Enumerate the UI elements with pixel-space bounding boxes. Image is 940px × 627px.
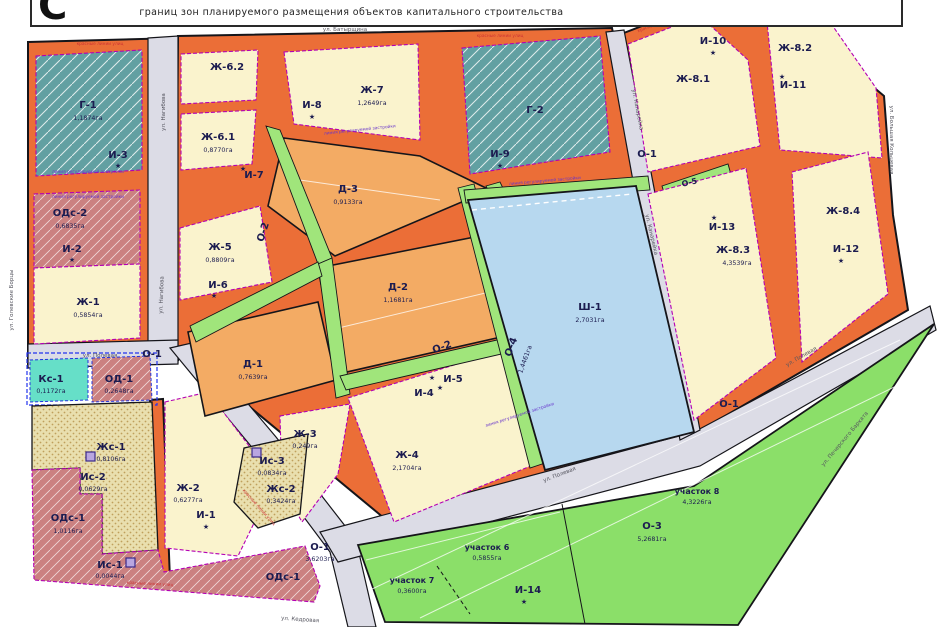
zone-label-zh2: Ж-2 — [176, 483, 199, 494]
zone-label-i7: И-7 — [244, 170, 264, 181]
zone-label-zhs1: Жс-1 — [96, 442, 125, 453]
regulated-line-annotation: линия регулируемой застройки — [52, 168, 124, 175]
title-bar: С границ зон планируемого размещения объ… — [30, 0, 903, 27]
zone-label-zh3: Ж-3 — [293, 429, 316, 440]
zone-label-is2: Ис-2 — [80, 472, 105, 483]
zone-label-zh82: Ж-8.2 — [778, 43, 812, 54]
zone-area-zhs2: 0,3424га — [266, 498, 295, 505]
substation-icon — [126, 558, 135, 567]
zone-label-d3: Д-3 — [338, 184, 358, 195]
zone-label-i13: И-13 — [709, 222, 735, 233]
zone-label-od1: ОД-1 — [105, 374, 134, 385]
zone-label-ks1: Кс-1 — [38, 374, 63, 385]
zone-area-zhs1: 0,8106га — [96, 456, 125, 463]
zone-label-i9: И-9 — [490, 149, 510, 160]
zone-area-o1: 3,6203га — [305, 556, 334, 563]
zone-label-i3: И-3 — [108, 150, 128, 161]
zone-label-i6: И-6 — [208, 280, 228, 291]
zone-area-is1: 0,0044га — [95, 573, 124, 580]
zone-area-d1: 0,7639га — [238, 374, 267, 381]
zone-area-zh4: 2,1704га — [392, 465, 421, 472]
zone-area-od1: 0,2648га — [104, 388, 133, 395]
zone-label-zh62: Ж-6.2 — [210, 62, 244, 73]
title-glyph: С — [38, 1, 67, 11]
zone-label-i1: И-1 — [196, 510, 216, 521]
zone-zh62-region — [181, 50, 258, 104]
zone-label-uch7: участок 7 — [390, 576, 435, 585]
zone-label-uch8: участок 8 — [675, 487, 720, 496]
street-label-bolshaya-koltsevaya: ул. Большая Кольцевая — [888, 106, 894, 175]
star-icon: ★ — [521, 598, 527, 606]
regulated-line-annotation: линия регулируемой застройки — [52, 193, 124, 200]
zone-label-i10: И-10 — [700, 36, 726, 47]
star-icon: ★ — [115, 162, 121, 170]
street-label-nagibova: ул. Нагибова — [161, 93, 167, 131]
zone-area-is3: 0,0834га — [257, 470, 286, 477]
street-label-polevaya: ул. Полевая — [83, 353, 118, 359]
zone-label-ods2: ОДс-2 — [53, 208, 87, 219]
star-icon: ★ — [203, 523, 209, 531]
zone-label-o1b: О-1 — [637, 149, 657, 160]
zone-area-zh83: 4,3539га — [722, 260, 751, 267]
zone-label-g2: Г-2 — [526, 105, 544, 116]
zone-label-o1c: О-1 — [719, 399, 739, 410]
star-icon: ★ — [240, 165, 246, 173]
star-icon: ★ — [437, 384, 443, 392]
zone-area-ods1: 1,0116га — [53, 528, 82, 535]
zone-label-zh83: Ж-8.3 — [716, 245, 750, 256]
substation-icon — [86, 452, 95, 461]
zone-label-ods1: ОДс-1 — [51, 513, 85, 524]
zone-label-zhs2: Жс-2 — [266, 484, 295, 495]
zone-area-zh2: 0,6277га — [173, 497, 202, 504]
zone-label-i4: И-4 — [414, 388, 434, 399]
plan-map: Г-1 1,1874га И-3 ★ ОДс-2 0,6835га И-2 ★ … — [0, 0, 940, 627]
zone-area-zh7: 1,2649га — [357, 100, 386, 107]
zone-label-i14: И-14 — [515, 585, 541, 596]
zone-area-uch7: 0,3600га — [397, 588, 426, 595]
red-line-annotation: красные линии улиц — [77, 42, 124, 47]
zone-label-zh4: Ж-4 — [395, 450, 418, 461]
zone-label-g1: Г-1 — [79, 100, 97, 111]
page-title: границ зон планируемого размещения объек… — [139, 7, 563, 18]
street-label-batyrshina: ул. Батырщина — [323, 27, 367, 33]
zone-area-zh1: 0,5854га — [73, 312, 102, 319]
star-icon: ★ — [779, 73, 785, 81]
zone-label-zh84: Ж-8.4 — [826, 206, 860, 217]
star-icon: ★ — [309, 113, 315, 121]
zone-label-o3: О-3 — [642, 521, 662, 532]
street-label-kedrovaya: ул. Кедровая — [281, 616, 319, 625]
red-line-annotation: красные линии улиц — [477, 34, 524, 39]
zone-area-ods2: 0,6835га — [55, 223, 84, 230]
zone-label-i12: И-12 — [833, 244, 859, 255]
zone-area-d2: 1,1681га — [383, 297, 412, 304]
zone-label-zh61: Ж-6.1 — [201, 132, 235, 143]
star-icon: ★ — [69, 256, 75, 264]
map-canvas: Г-1 1,1874га И-3 ★ ОДс-2 0,6835га И-2 ★ … — [0, 0, 940, 627]
zone-label-zh81: Ж-8.1 — [676, 74, 710, 85]
zone-label-i11: И-11 — [780, 80, 806, 91]
star-icon: ★ — [710, 49, 716, 57]
zone-label-is1: Ис-1 — [97, 560, 122, 571]
star-icon: ★ — [711, 214, 717, 222]
zone-label-d1: Д-1 — [243, 359, 263, 370]
zone-label-uch6: участок 6 — [465, 543, 510, 552]
zone-label-zh7: Ж-7 — [360, 85, 383, 96]
zone-ods2-region — [34, 190, 140, 268]
zone-label-zh5: Ж-5 — [208, 242, 231, 253]
zone-area-sh1: 2,7031га — [575, 317, 604, 324]
zone-label-o1a: О-1 — [142, 349, 162, 360]
star-icon: ★ — [838, 257, 844, 265]
zone-area-d3: 0,9133га — [333, 199, 362, 206]
star-icon: ★ — [211, 292, 217, 300]
zone-area-uch8: 4,3226га — [682, 499, 711, 506]
zone-area-zh61: 0,8770га — [203, 147, 232, 154]
street-label-golevskie: ул. Голевские Борцы — [9, 270, 15, 331]
zone-area-is2: 0,0629га — [78, 486, 107, 493]
zone-label-is3: Ис-3 — [259, 456, 284, 467]
zone-label-d2: Д-2 — [388, 282, 408, 293]
zone-area-ks1: 0,1172га — [36, 388, 65, 395]
zone-label-i8: И-8 — [302, 100, 322, 111]
zone-label-i2: И-2 — [62, 244, 82, 255]
zone-area-uch6: 0,5855га — [472, 555, 501, 562]
zone-area-zh3: 0,249га — [292, 443, 317, 450]
star-icon: ★ — [497, 162, 503, 170]
zone-area-o3: 5,2681га — [637, 536, 666, 543]
zone-label-o1-street: О-1 — [310, 542, 330, 553]
zone-label-i5: И-5 — [443, 374, 463, 385]
zone-label-ods1b: ОДс-1 — [266, 572, 300, 583]
zone-area-g1: 1,1874га — [73, 115, 102, 122]
zone-area-zh5: 0,8809га — [205, 257, 234, 264]
star-icon: ★ — [429, 374, 435, 382]
zone-label-zh1: Ж-1 — [76, 297, 99, 308]
zone-label-sh1: Ш-1 — [578, 302, 602, 313]
